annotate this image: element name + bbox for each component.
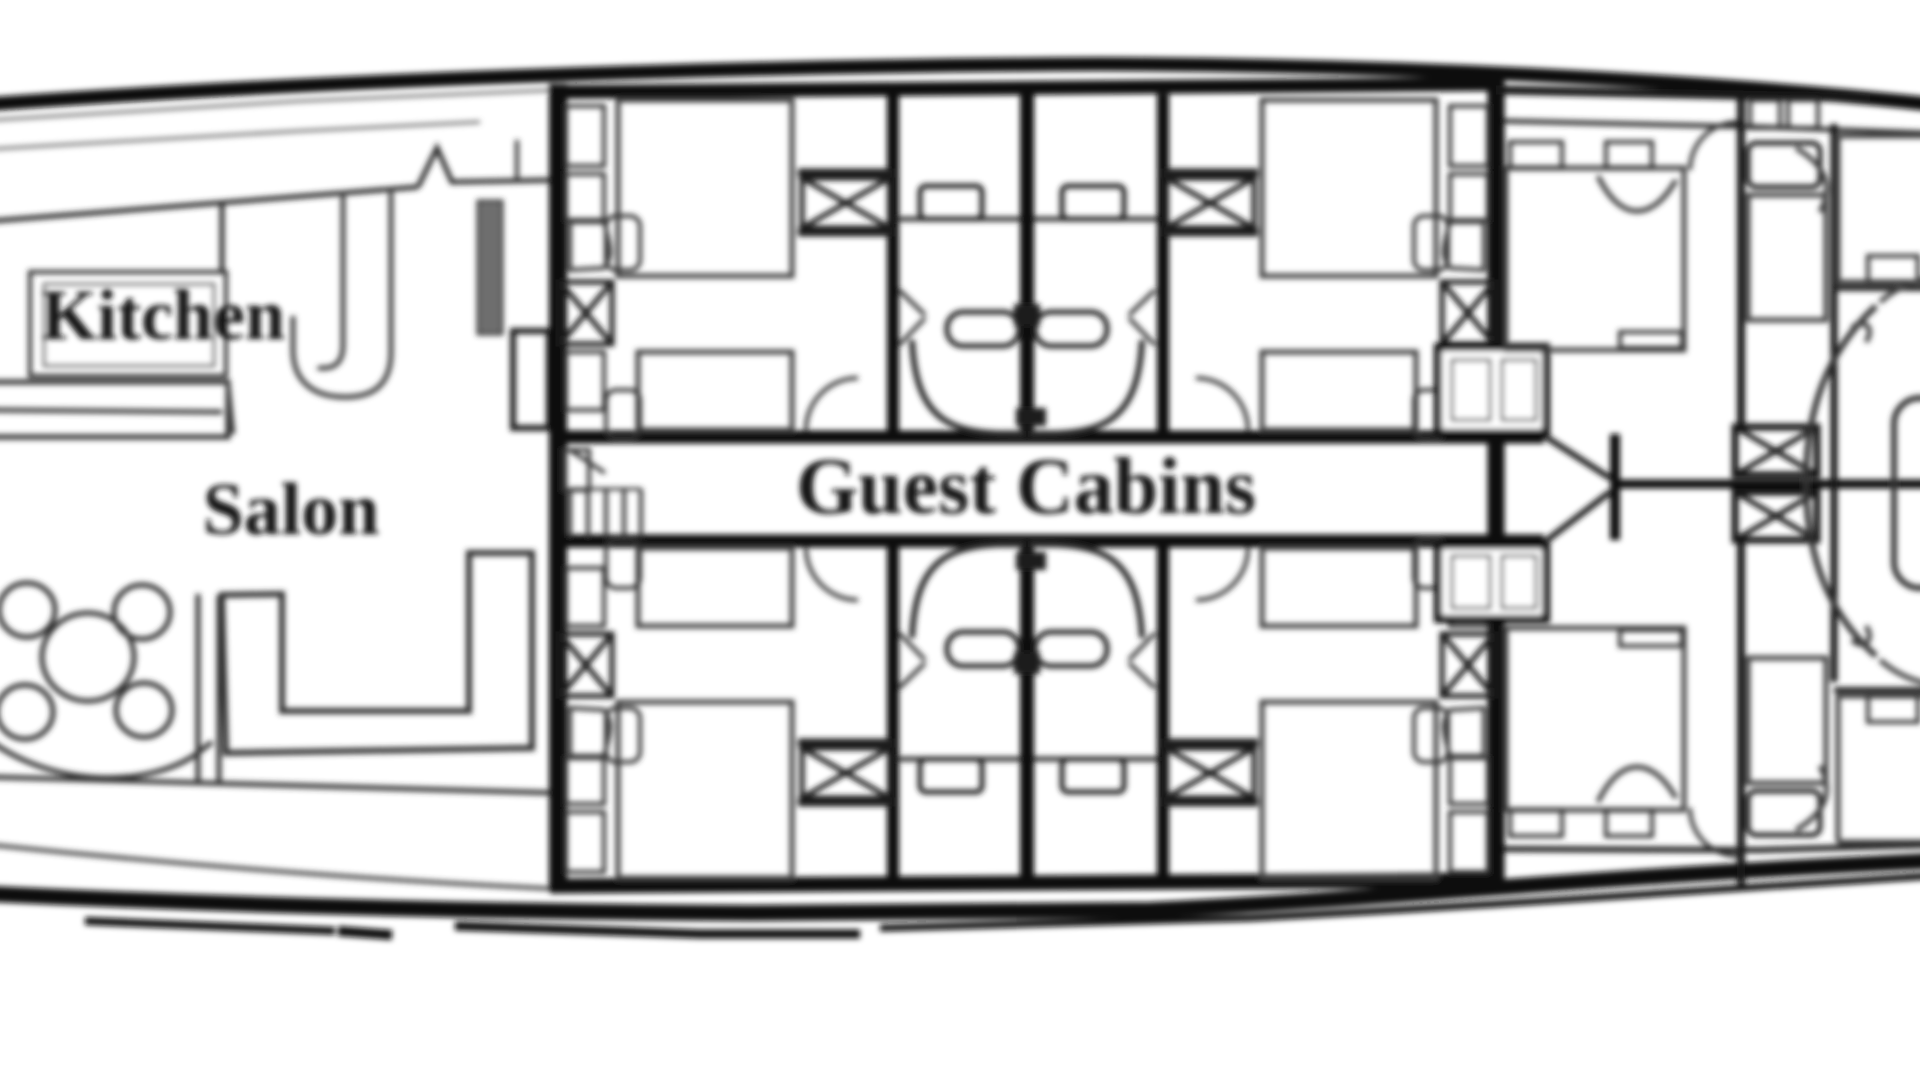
svg-text:Guest Cabins: Guest Cabins <box>796 443 1256 531</box>
svg-text:Kitchen: Kitchen <box>41 275 285 355</box>
svg-text:Salon: Salon <box>203 469 380 551</box>
